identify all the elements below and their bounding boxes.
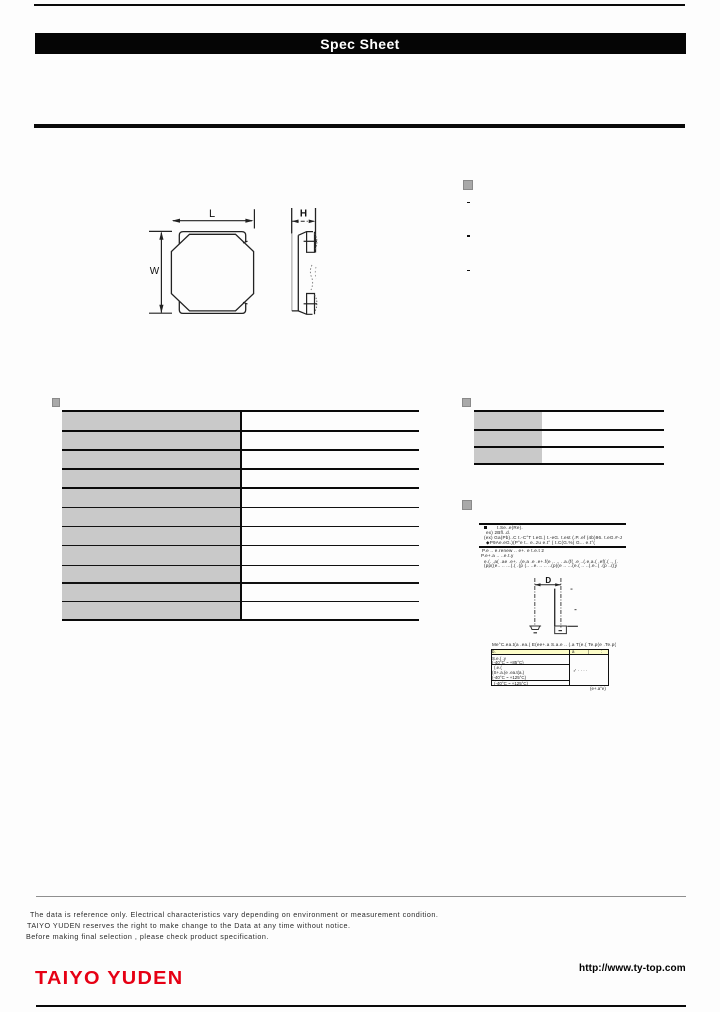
svg-text:L: L [209, 208, 215, 220]
svg-text:D: D [545, 576, 551, 585]
svg-text:W: W [150, 266, 160, 277]
svg-text:H: H [300, 209, 307, 220]
